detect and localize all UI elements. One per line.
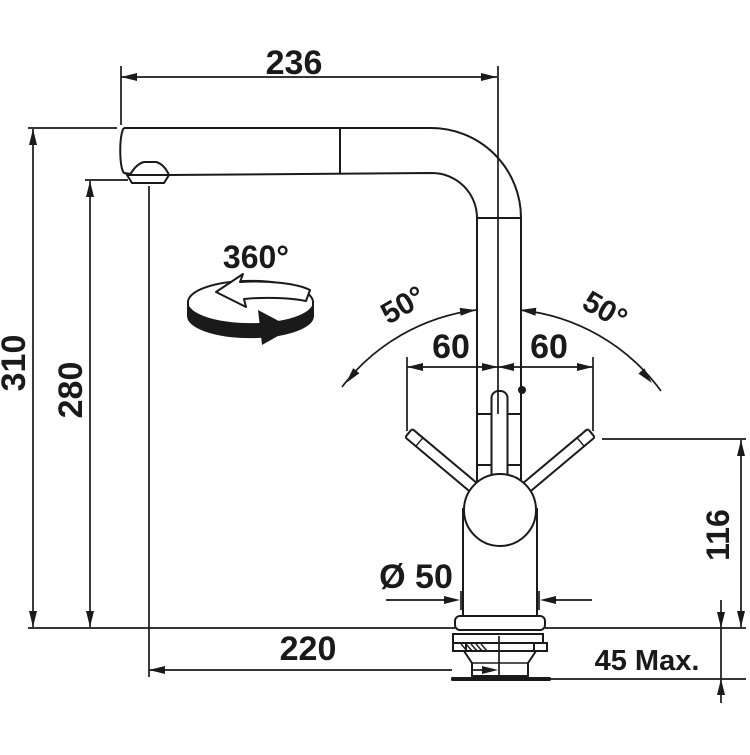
- arrowhead-up: [737, 440, 745, 456]
- arrowhead-up: [717, 679, 725, 695]
- arrowhead-down: [86, 611, 94, 627]
- base-flange: [455, 616, 545, 630]
- bracket-step-right: [534, 643, 547, 651]
- handle-swing-arcs: 50° 50°: [342, 280, 661, 391]
- arrowhead-left: [121, 73, 137, 81]
- spout-end-cap: [120, 128, 131, 174]
- faucet-dimension-drawing: 236 310 280 360° 50° 50°: [0, 0, 750, 750]
- dim-label-310: 310: [0, 335, 33, 392]
- dim-outlet-height: 280: [52, 180, 128, 627]
- arrowhead-down: [29, 611, 37, 627]
- dim-label-60-right: 60: [530, 328, 568, 366]
- swivel-label-360: 360°: [223, 239, 289, 275]
- handle-lever: [492, 391, 508, 480]
- arrowhead-center-left: [482, 363, 498, 371]
- arc-right-arrow-top: [520, 308, 536, 316]
- swivel-symbol: 360°: [188, 239, 313, 345]
- mounting-bracket: [453, 634, 543, 643]
- technical-drawing-canvas: 236 310 280 360° 50° 50°: [0, 0, 750, 750]
- arrowhead-right: [540, 596, 556, 604]
- spout-tube: [124, 128, 521, 484]
- base-plate: [451, 677, 551, 681]
- dim-label-116: 116: [700, 509, 736, 561]
- dim-label-220: 220: [280, 630, 337, 668]
- handle-left-tilted: [405, 429, 478, 493]
- arrowhead-far-left: [407, 363, 423, 371]
- spray-head-dome: [130, 162, 169, 175]
- dim-label-280: 280: [52, 362, 90, 419]
- arc-left-arrow-top: [460, 308, 476, 316]
- angle-label-left: 50°: [375, 280, 431, 331]
- arrowhead-left: [149, 666, 165, 674]
- dim-body-diameter: Ø 50: [379, 558, 592, 610]
- arc-right-arrow-bottom: [638, 368, 652, 383]
- dim-label-dia50: Ø 50: [379, 558, 453, 596]
- dim-max-deck-thickness: 45 Max.: [595, 600, 725, 703]
- dim-label-60-left: 60: [432, 328, 470, 366]
- dim-handle-height: 116: [602, 439, 746, 627]
- arrowhead-down: [737, 611, 745, 627]
- ball-joint: [464, 474, 536, 546]
- handle-right-tilted: [522, 429, 595, 493]
- arrowhead-right: [481, 73, 497, 81]
- dim-label-236: 236: [266, 44, 323, 82]
- arrowhead-far-right: [577, 363, 593, 371]
- arrowhead-left: [444, 596, 460, 604]
- pivot-pin-dot: [518, 386, 526, 394]
- spray-outlet: [127, 175, 169, 183]
- arrowhead-up: [86, 181, 94, 197]
- arrowhead-center-right: [498, 363, 514, 371]
- arrowhead-down: [717, 612, 725, 628]
- dim-label-45max: 45 Max.: [595, 645, 700, 677]
- arrowhead-up: [29, 129, 37, 145]
- faucet-outline: [120, 128, 595, 630]
